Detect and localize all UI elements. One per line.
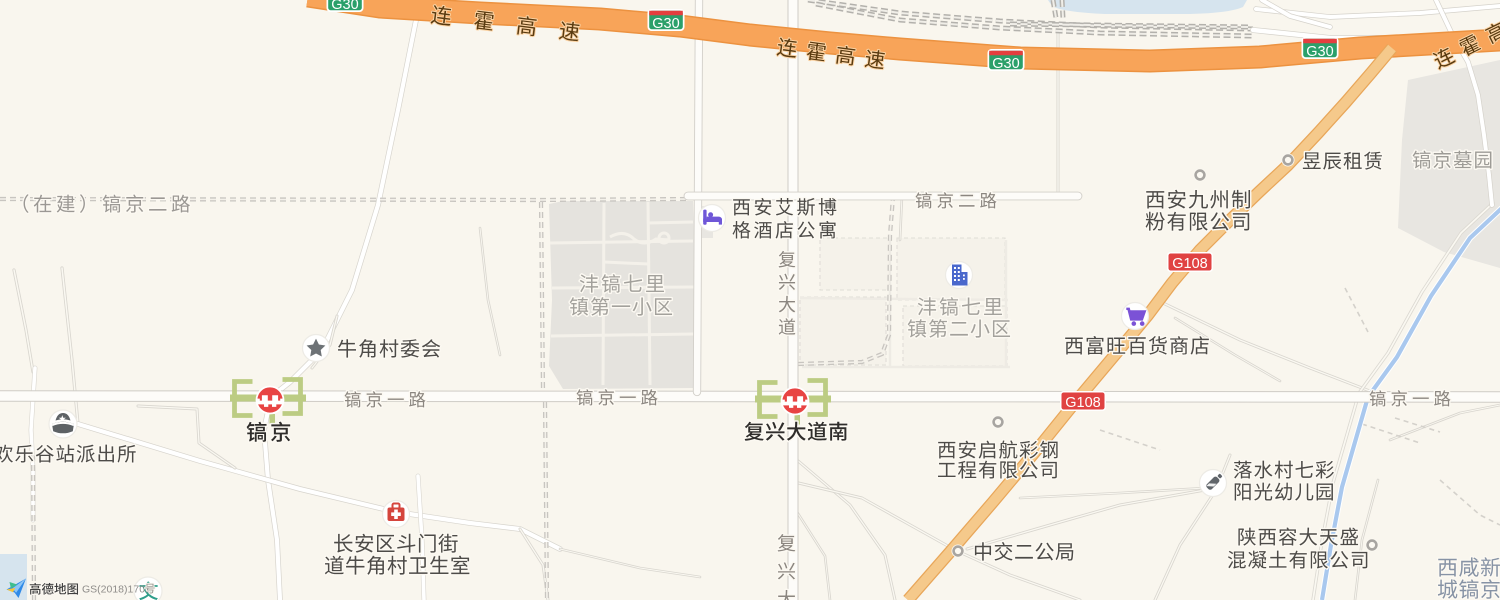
svg-text:GS(2018)1709: GS(2018)1709 [82, 584, 151, 596]
svg-text:G108: G108 [1065, 395, 1100, 411]
svg-text:G30: G30 [992, 56, 1019, 72]
svg-text:G108: G108 [1172, 256, 1207, 272]
svg-text:G30: G30 [1306, 44, 1333, 60]
svg-text:G30: G30 [331, 0, 358, 13]
svg-text:G30: G30 [652, 16, 679, 32]
